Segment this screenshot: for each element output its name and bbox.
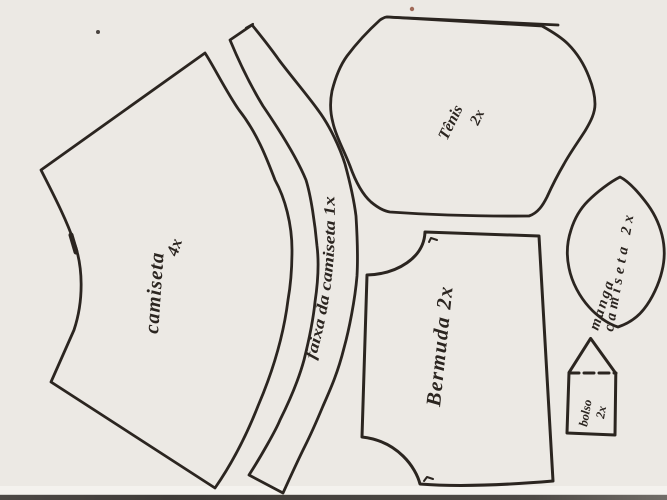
svg-text:2x: 2x xyxy=(593,405,609,421)
